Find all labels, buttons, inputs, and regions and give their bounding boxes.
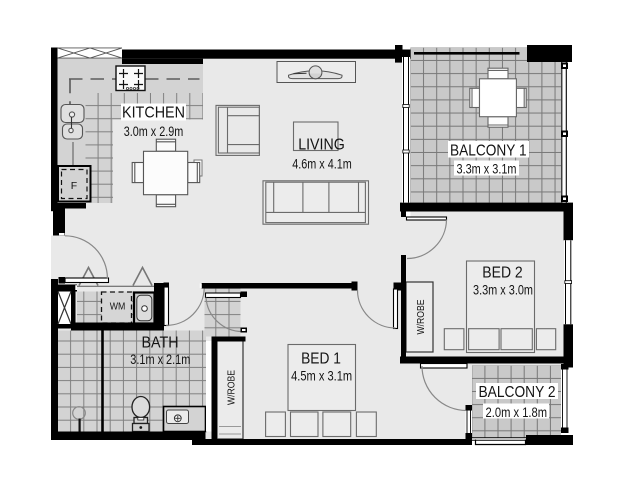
svg-text:W/ROBE: W/ROBE: [415, 300, 427, 335]
svg-text:BED 1: BED 1: [301, 351, 341, 368]
svg-text:3.3m x 3.0m: 3.3m x 3.0m: [473, 282, 533, 298]
svg-text:3.3m x 3.1m: 3.3m x 3.1m: [457, 162, 517, 178]
svg-text:KITCHEN: KITCHEN: [122, 105, 185, 122]
svg-text:4.5m x 3.1m: 4.5m x 3.1m: [291, 369, 352, 385]
svg-text:BALCONY 1: BALCONY 1: [450, 143, 527, 160]
svg-text:W/ROBE: W/ROBE: [226, 370, 238, 405]
svg-text:BATH: BATH: [141, 334, 178, 351]
svg-text:WM: WM: [110, 301, 126, 313]
svg-text:LIVING: LIVING: [298, 136, 345, 153]
svg-text:3.0m x 2.9m: 3.0m x 2.9m: [124, 124, 184, 140]
svg-text:4.6m x 4.1m: 4.6m x 4.1m: [292, 157, 352, 173]
svg-text:F: F: [71, 180, 77, 192]
svg-text:BALCONY 2: BALCONY 2: [479, 384, 556, 401]
svg-text:3.1m x 2.1m: 3.1m x 2.1m: [130, 352, 190, 368]
svg-text:2.0m x 1.8m: 2.0m x 1.8m: [486, 405, 548, 421]
svg-text:BED 2: BED 2: [482, 264, 522, 281]
